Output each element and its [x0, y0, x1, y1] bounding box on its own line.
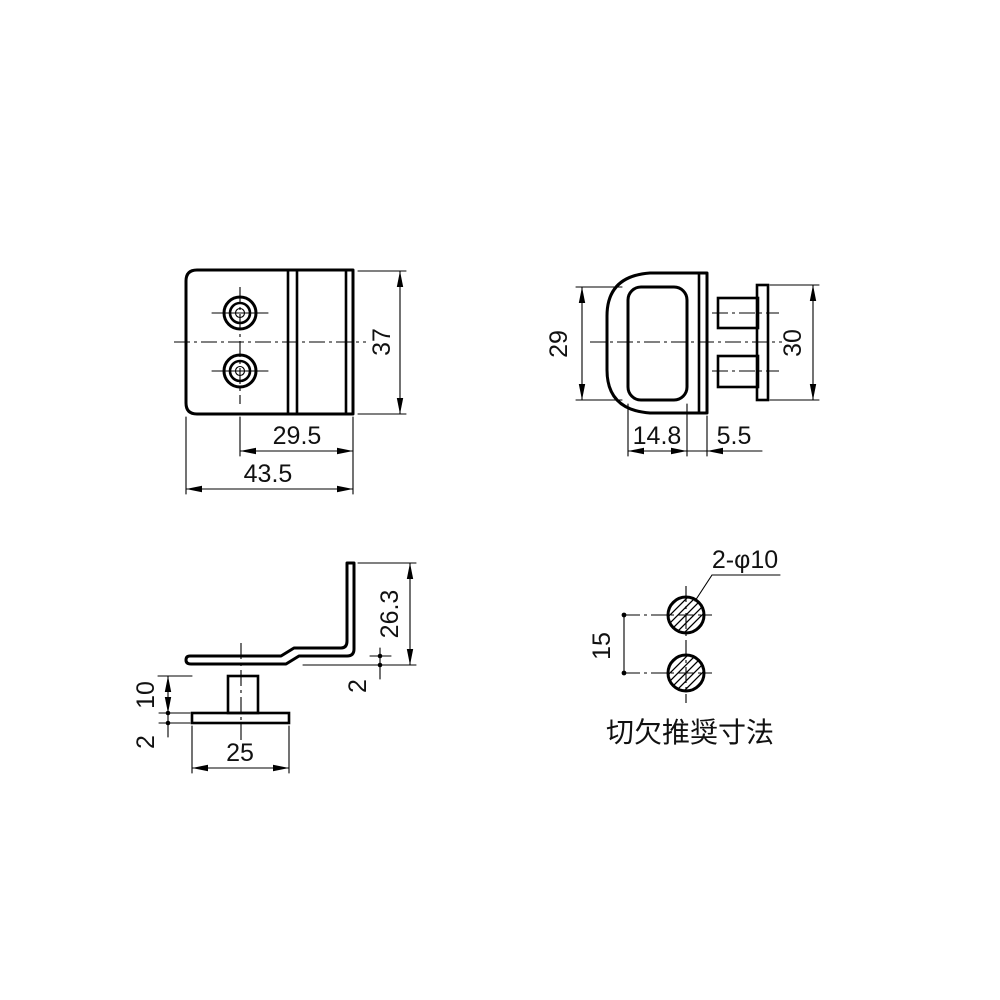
front-view: 37 29.5 43.5 [174, 270, 406, 494]
dim-label-26-3: 26.3 [376, 590, 404, 639]
cutout-view: 15 2-φ10 切欠推奨寸法 [588, 546, 780, 748]
profile-stud [228, 676, 258, 713]
drawing-svg: 37 29.5 43.5 29 [0, 0, 1000, 1000]
side-dim-opening-height: 29 [545, 287, 622, 400]
dim-label-2-bend: 2 [344, 679, 372, 693]
cutout-leader: 2-φ10 [695, 546, 780, 601]
front-dim-total-width: 43.5 [186, 417, 353, 494]
dim-label-25: 25 [226, 739, 254, 767]
dim-label-2-flange: 2 [132, 735, 160, 749]
leader-label-2-phi10: 2-φ10 [712, 546, 778, 574]
profile-dim-flange-thickness: 2 [132, 711, 190, 749]
dim-label-30: 30 [779, 329, 807, 357]
dim-label-5-5: 5.5 [717, 422, 752, 450]
dim-label-14-8: 14.8 [633, 422, 682, 450]
profile-dim-leg-height: 26.3 [303, 563, 416, 665]
side-opening [628, 287, 687, 400]
profile-plate-outline [186, 563, 354, 664]
dim-label-43-5: 43.5 [244, 460, 293, 488]
profile-view: 26.3 2 10 2 25 [132, 563, 416, 773]
profile-dim-stud-length: 10 [132, 676, 192, 713]
side-view: 29 30 14.8 5.5 [545, 273, 819, 456]
dim-label-29-5: 29.5 [273, 422, 322, 450]
side-dim-flange-height: 30 [770, 285, 819, 400]
front-dim-hole-to-edge: 29.5 [240, 417, 353, 456]
dim-label-29: 29 [545, 330, 573, 358]
dim-label-37: 37 [368, 328, 396, 356]
cutout-caption: 切欠推奨寸法 [606, 717, 774, 748]
dim-label-10: 10 [132, 681, 160, 709]
side-body-outline [607, 273, 707, 413]
technical-drawing-sheet: 37 29.5 43.5 29 [0, 0, 1000, 1000]
cutout-dim-hole-pitch: 15 [588, 613, 626, 676]
dim-label-15: 15 [588, 632, 616, 660]
